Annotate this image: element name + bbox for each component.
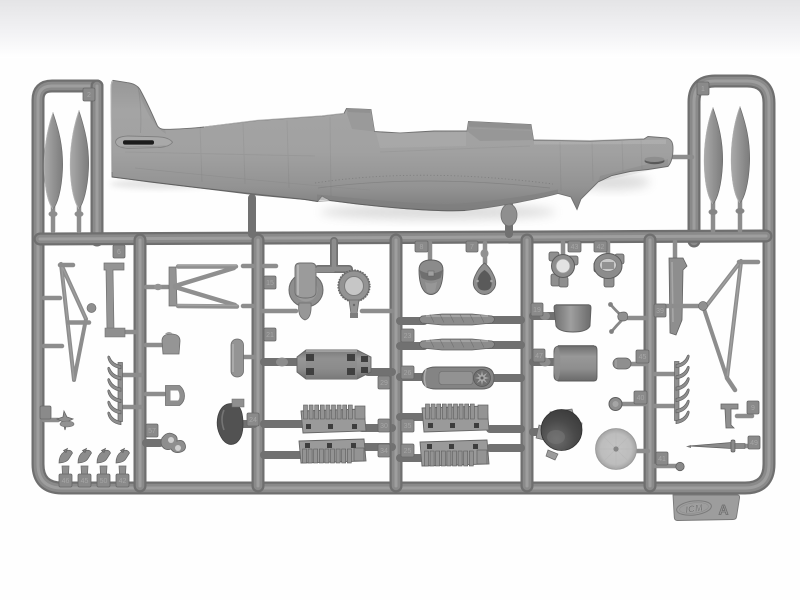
svg-text:42: 42 (597, 244, 605, 251)
svg-text:2: 2 (87, 92, 91, 99)
svg-text:8: 8 (420, 244, 424, 251)
svg-text:29: 29 (380, 380, 388, 387)
svg-text:19: 19 (533, 307, 541, 314)
svg-text:46: 46 (62, 478, 70, 485)
svg-text:43: 43 (571, 244, 579, 251)
svg-text:45: 45 (81, 478, 89, 485)
svg-text:9: 9 (751, 405, 755, 412)
svg-text:39: 39 (656, 308, 664, 315)
svg-text:24: 24 (249, 417, 257, 424)
svg-text:47: 47 (535, 353, 543, 360)
svg-text:30: 30 (380, 423, 388, 430)
svg-text:26: 26 (404, 370, 412, 377)
svg-text:15: 15 (266, 280, 274, 287)
svg-text:7: 7 (470, 244, 474, 251)
svg-text:ICM: ICM (685, 503, 705, 516)
svg-text:25: 25 (404, 448, 412, 455)
svg-text:49: 49 (750, 440, 758, 447)
svg-text:41: 41 (658, 456, 666, 463)
svg-text:45: 45 (639, 354, 647, 361)
svg-text:50: 50 (100, 478, 108, 485)
svg-text:21: 21 (266, 332, 274, 339)
svg-text:1: 1 (701, 86, 705, 93)
svg-text:57: 57 (148, 428, 156, 435)
svg-text:34: 34 (380, 448, 388, 455)
svg-text:6: 6 (117, 249, 121, 256)
svg-text:40: 40 (637, 395, 645, 402)
svg-text:A: A (719, 503, 729, 518)
svg-text:42: 42 (119, 478, 127, 485)
svg-text:35: 35 (404, 423, 412, 430)
svg-text:23: 23 (404, 333, 412, 340)
